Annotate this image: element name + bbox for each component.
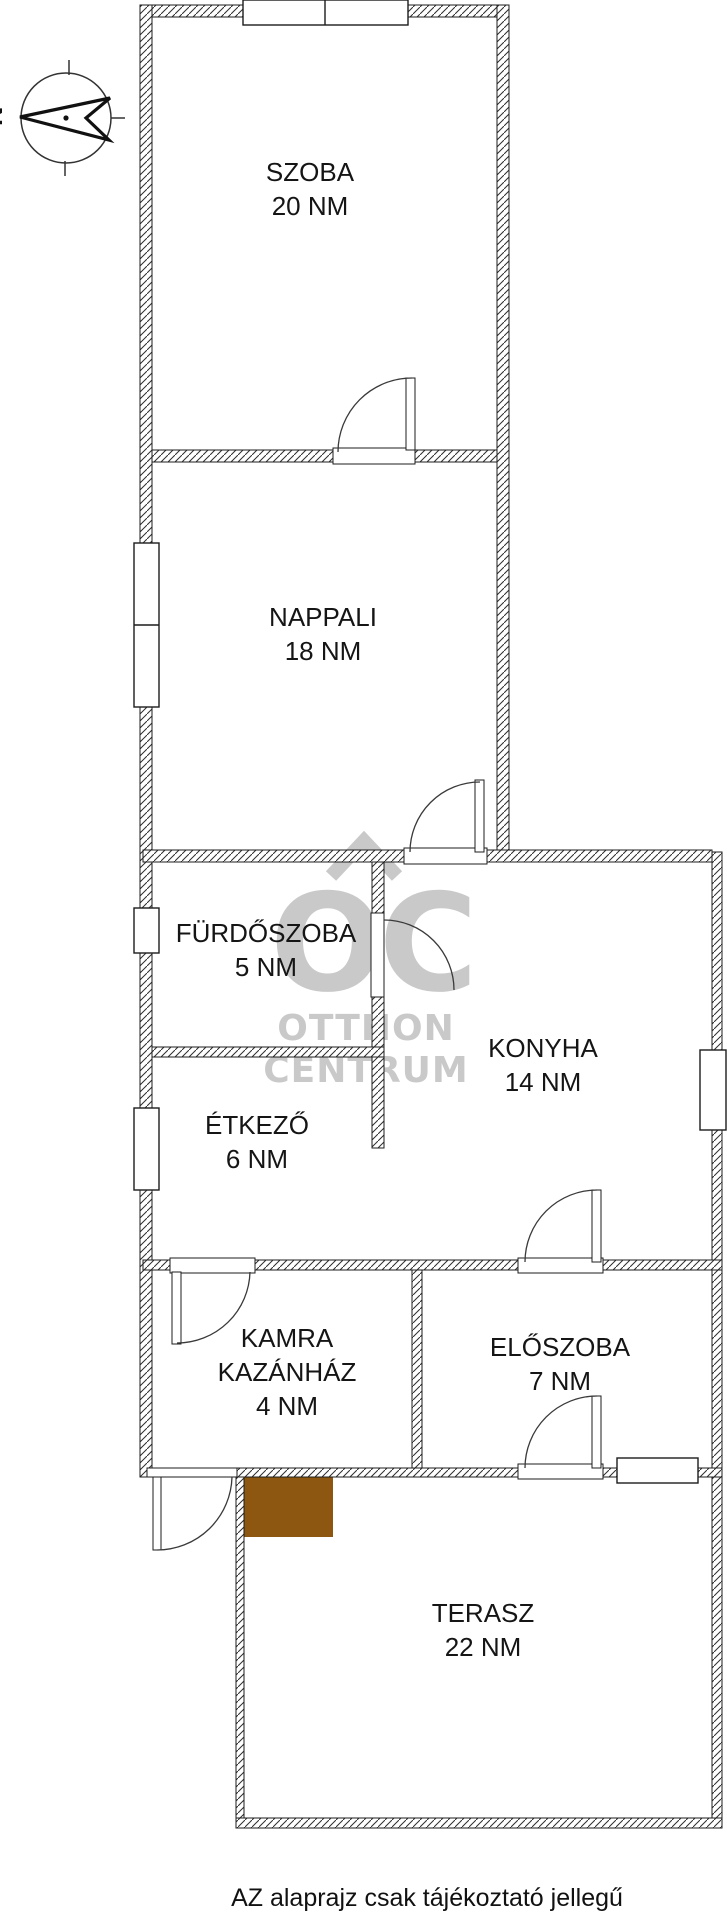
wall-right-upper xyxy=(497,5,509,862)
wall-szoba-nappali-left xyxy=(152,450,333,462)
room-name-kamra-line2: KAZÁNHÁZ xyxy=(218,1355,357,1389)
room-label-konyha: KONYHA 14 NM xyxy=(488,1031,598,1099)
wall-bottom-2 xyxy=(603,1468,617,1477)
door-nappali-leaf xyxy=(475,780,484,852)
room-label-szoba: SZOBA 20 NM xyxy=(266,155,354,223)
disclaimer-text: AZ alaprajz csak tájékoztató jellegű xyxy=(231,1884,623,1913)
room-area-furdoszoba: 5 NM xyxy=(176,950,357,984)
room-name-nappali: NAPPALI xyxy=(269,600,377,634)
wall-kamra-eloszoba xyxy=(412,1270,422,1468)
door-kamra-threshold xyxy=(170,1258,255,1273)
wall-bottom-3 xyxy=(698,1468,722,1477)
door-eloszoba-top-swing xyxy=(525,1190,597,1262)
room-label-nappali: NAPPALI 18 NM xyxy=(269,600,377,668)
door-kamra-leaf xyxy=(172,1272,181,1344)
room-area-eloszoba: 7 NM xyxy=(490,1364,630,1398)
wall-nappali-bottom-left xyxy=(143,850,404,862)
wall-etkezo-bottom-1 xyxy=(143,1260,170,1270)
room-area-konyha: 14 NM xyxy=(488,1065,598,1099)
compass-center-dot xyxy=(63,115,68,120)
room-name-kamra-line1: KAMRA xyxy=(218,1321,357,1355)
room-area-szoba: 20 NM xyxy=(266,189,354,223)
door-eloszoba-terasz-threshold xyxy=(518,1464,603,1479)
room-name-etkezo: ÉTKEZŐ xyxy=(205,1108,309,1142)
door-eloszoba-terasz-leaf xyxy=(592,1396,601,1468)
wall-etkezo-bottom-2 xyxy=(255,1260,518,1270)
boiler-block xyxy=(240,1477,333,1537)
watermark-line1: OTTHON xyxy=(277,1008,454,1049)
door-szoba-threshold xyxy=(333,448,415,464)
wall-terasz-bottom xyxy=(236,1818,722,1828)
door-szoba-swing xyxy=(338,378,412,452)
room-name-konyha: KONYHA xyxy=(488,1031,598,1065)
room-label-kamra: KAMRA KAZÁNHÁZ 4 NM xyxy=(218,1321,357,1423)
door-eloszoba-terasz-swing xyxy=(525,1396,597,1468)
room-name-szoba: SZOBA xyxy=(266,155,354,189)
door-kamra-exterior-leaf xyxy=(153,1477,161,1550)
wall-right-lower xyxy=(712,852,722,1828)
window-konyha-right xyxy=(700,1050,726,1130)
door-kamra-exterior-threshold xyxy=(147,1468,237,1477)
room-label-terasz: TERASZ 22 NM xyxy=(432,1596,535,1664)
wall-szoba-nappali-right xyxy=(415,450,497,462)
door-furdoszoba-threshold xyxy=(371,913,384,997)
wall-furdo-konyha-upper xyxy=(372,862,384,915)
room-name-furdoszoba: FÜRDŐSZOBA xyxy=(176,916,357,950)
room-area-terasz: 22 NM xyxy=(432,1630,535,1664)
room-label-etkezo: ÉTKEZŐ 6 NM xyxy=(205,1108,309,1176)
door-kamra-exterior-swing xyxy=(157,1477,232,1550)
window-etkezo-left xyxy=(134,1108,159,1190)
wall-nappali-bottom-right xyxy=(487,850,712,862)
wall-etkezo-bottom-3 xyxy=(603,1260,722,1270)
compass: N xyxy=(0,60,125,176)
wall-terasz-left xyxy=(236,1477,244,1818)
room-area-nappali: 18 NM xyxy=(269,634,377,668)
door-eloszoba-top-threshold xyxy=(518,1258,603,1273)
compass-north-label: N xyxy=(0,107,8,127)
wall-left xyxy=(140,5,152,1477)
wall-furdo-etkezo xyxy=(152,1047,384,1057)
wall-furdo-konyha-lower xyxy=(372,997,384,1148)
room-name-eloszoba: ELŐSZOBA xyxy=(490,1330,630,1364)
wall-bottom-1 xyxy=(237,1468,518,1477)
door-nappali-swing xyxy=(410,782,480,852)
door-szoba-leaf xyxy=(406,378,415,450)
floorplan-drawing: OC OTTHON CENTRUM xyxy=(0,0,727,1920)
window-eloszoba-bottom xyxy=(617,1458,698,1483)
door-eloszoba-top-leaf xyxy=(592,1190,601,1262)
window-furdoszoba-left xyxy=(134,908,159,953)
floorplan-page: OC OTTHON CENTRUM xyxy=(0,0,727,1920)
room-label-eloszoba: ELŐSZOBA 7 NM xyxy=(490,1330,630,1398)
room-area-kamra: 4 NM xyxy=(218,1389,357,1423)
room-area-etkezo: 6 NM xyxy=(205,1142,309,1176)
room-name-terasz: TERASZ xyxy=(432,1596,535,1630)
room-label-furdoszoba: FÜRDŐSZOBA 5 NM xyxy=(176,916,357,984)
